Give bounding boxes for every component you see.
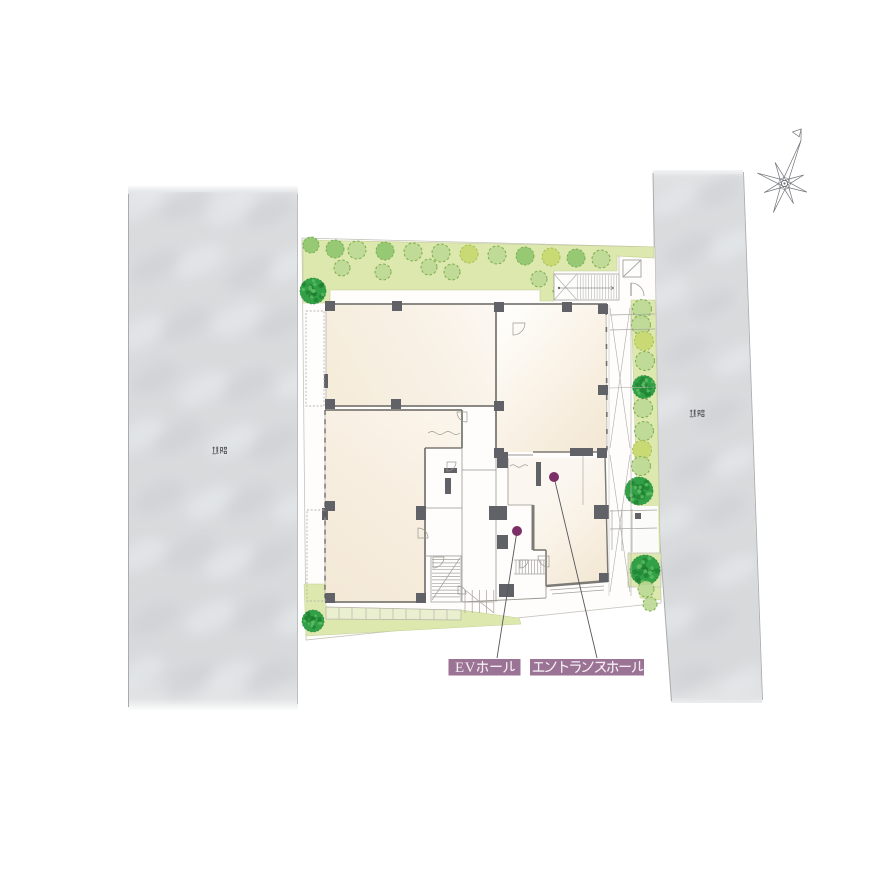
svg-text:EV: EV xyxy=(455,660,476,676)
